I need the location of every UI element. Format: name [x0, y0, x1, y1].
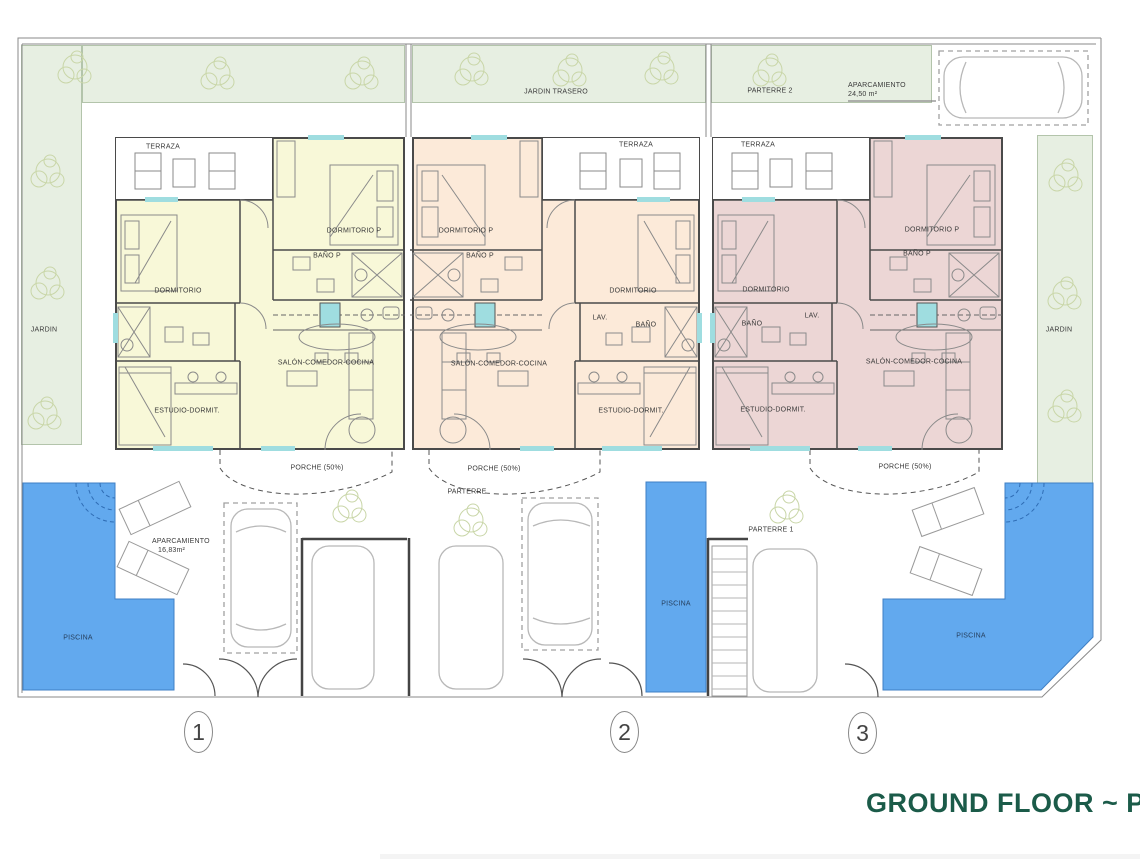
car-icon	[439, 546, 503, 689]
unit1-piscina-label: PISCINA	[63, 635, 92, 642]
unit3-salon-label: SALÓN-COMEDOR-COCINA	[866, 359, 962, 366]
page-title: GROUND FLOOR ~ PLANTA	[866, 788, 1140, 819]
unit2-estudio-label: ESTUDIO-DORMIT.	[598, 408, 663, 415]
unit1-bano-p-label: BAÑO P	[313, 253, 341, 260]
unit1-dormitorio-p-label: DORMITORIO P	[327, 228, 381, 235]
unit3-parterre1-label: PARTERRE 1	[748, 527, 793, 534]
car-icon	[312, 546, 374, 689]
unit3-lav-label: LAV.	[805, 313, 820, 320]
porche-outlines	[220, 450, 979, 494]
unit2-parterre-label: PARTERRE	[447, 489, 486, 496]
aparcamiento-top-area: 24,50 m²	[848, 91, 877, 98]
unit2-interior	[410, 135, 702, 451]
unit3-estudio-label: ESTUDIO-DORMIT.	[740, 407, 805, 414]
unit2-piscina-label: PISCINA	[661, 601, 690, 608]
unit3-dormitorio-p-label: DORMITORIO P	[905, 227, 959, 234]
unit2-salon-label: SALÓN-COMEDOR-COCINA	[451, 361, 547, 368]
unit3-bano-p-label: BAÑO P	[903, 251, 931, 258]
unit1-dormitorio-label: DORMITORIO	[154, 288, 201, 295]
unit2-bano-label: BAÑO	[636, 322, 657, 329]
unit1-terraza-label: TERRAZA	[146, 144, 180, 151]
floor-plan: JARDIN TRASERO PARTERRE 2 JARDIN JARDIN …	[0, 0, 1140, 860]
jardin-trasero-label: JARDIN TRASERO	[524, 89, 588, 96]
unit2-number-badge: 2	[610, 711, 639, 753]
unit3-porche-label: PORCHE (50%)	[879, 464, 932, 471]
parterre2-label: PARTERRE 2	[747, 88, 792, 95]
unit1-aparcamiento-label: APARCAMIENTO	[152, 538, 210, 545]
unit2-lav-label: LAV.	[593, 315, 608, 322]
jardin-left-label: JARDIN	[31, 327, 57, 334]
unit3-piscina-label: PISCINA	[956, 633, 985, 640]
unit2-bano-p-label: BAÑO P	[466, 253, 494, 260]
unit1-porche-label: PORCHE (50%)	[291, 465, 344, 472]
aparcamiento-top-label: APARCAMIENTO	[848, 82, 906, 89]
unit3-number-badge: 3	[848, 712, 877, 754]
unit1-number-badge: 1	[184, 711, 213, 753]
unit1-aparcamiento-area: 16,83m²	[158, 547, 185, 554]
jardin-right-label: JARDIN	[1046, 327, 1072, 334]
steps-hatch	[712, 546, 747, 696]
unit2-terraza-label: TERRAZA	[619, 142, 653, 149]
unit2-dormitorio-label: DORMITORIO	[609, 288, 656, 295]
unit2-dormitorio-p-label: DORMITORIO P	[439, 228, 493, 235]
unit2-porche-label: PORCHE (50%)	[468, 466, 521, 473]
unit3-terraza-label: TERRAZA	[741, 142, 775, 149]
pool-unit2	[646, 482, 706, 692]
car-icon	[753, 549, 817, 692]
unit3-dormitorio-label: DORMITORIO	[742, 287, 789, 294]
unit1-estudio-label: ESTUDIO-DORMIT.	[154, 408, 219, 415]
unit1-salon-label: SALÓN-COMEDOR-COCINA	[278, 360, 374, 367]
plan-drawing-layer	[0, 0, 1140, 860]
unit3-bano-label: BAÑO	[742, 321, 763, 328]
